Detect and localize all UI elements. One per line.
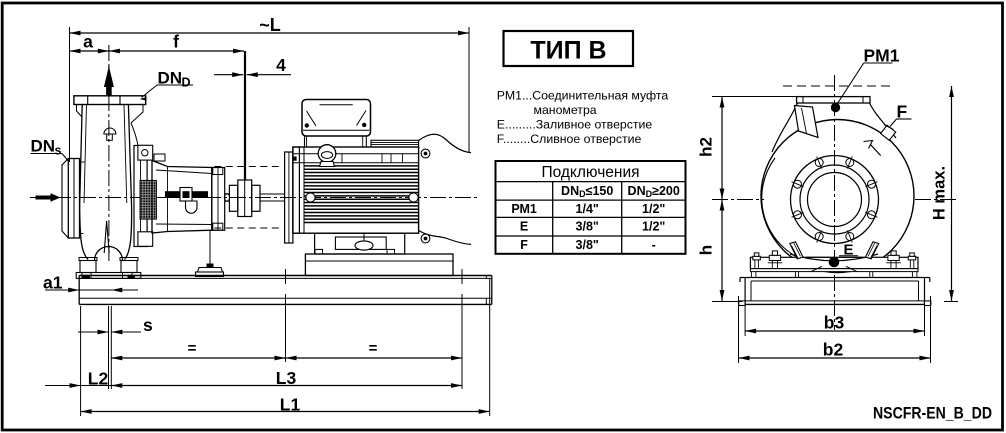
svg-text:h2: h2 (697, 137, 716, 157)
svg-text:~L: ~L (259, 15, 281, 35)
svg-text:=: = (369, 340, 378, 357)
svg-text:Е.........Заливное отверстие: Е.........Заливное отверстие (497, 118, 653, 132)
svg-text:1/2": 1/2" (642, 220, 665, 234)
svg-text:H max.: H max. (931, 166, 949, 220)
svg-text:Е: Е (520, 220, 528, 234)
svg-text:манометра: манометра (534, 103, 597, 117)
svg-text:L2: L2 (88, 369, 109, 389)
svg-text:s: s (55, 144, 62, 158)
svg-text:L3: L3 (276, 368, 297, 388)
svg-text:a: a (83, 32, 93, 52)
svg-text:b3: b3 (824, 313, 845, 333)
svg-text:1/4": 1/4" (576, 202, 599, 216)
svg-text:Е: Е (844, 242, 854, 259)
svg-text:1/2": 1/2" (642, 202, 665, 216)
svg-text:f: f (173, 32, 179, 52)
svg-text:=: = (188, 340, 197, 357)
svg-text:D: D (182, 76, 191, 90)
svg-text:DND≥200: DND≥200 (628, 184, 680, 199)
svg-text:ТИП В: ТИП В (530, 37, 606, 65)
svg-text:NSCFR-EN_B_DD: NSCFR-EN_B_DD (873, 404, 992, 423)
svg-text:4: 4 (276, 55, 286, 75)
svg-text:DN: DN (31, 137, 56, 156)
svg-text:РМ1...Соединительная муфта: РМ1...Соединительная муфта (497, 89, 669, 103)
svg-text:s: s (143, 315, 153, 335)
svg-text:b2: b2 (823, 340, 844, 360)
svg-text:РМ1: РМ1 (511, 202, 537, 216)
svg-text:F: F (520, 238, 528, 252)
svg-text:3/8": 3/8" (576, 220, 599, 234)
svg-text:L1: L1 (280, 395, 301, 415)
svg-text:DND≤150: DND≤150 (561, 184, 613, 199)
svg-text:F........Сливное отверстие: F........Сливное отверстие (497, 132, 642, 146)
svg-text:Подключения: Подключения (541, 164, 639, 181)
svg-text:h: h (697, 245, 716, 255)
svg-text:3/8": 3/8" (576, 238, 599, 252)
svg-text:-: - (652, 238, 656, 252)
